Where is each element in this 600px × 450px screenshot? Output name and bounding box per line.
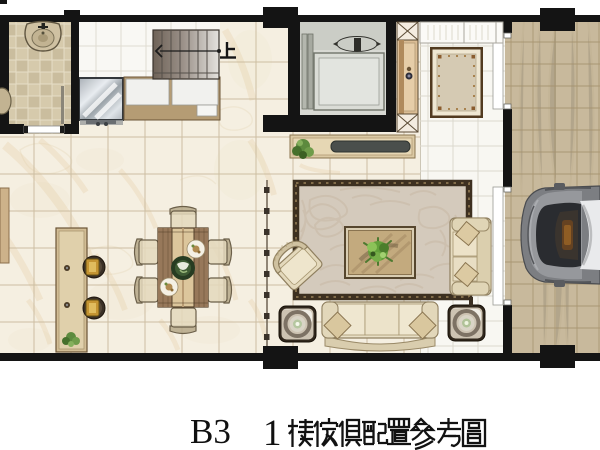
svg-text:1: 1 xyxy=(263,413,282,450)
svg-text:B3: B3 xyxy=(190,412,231,450)
